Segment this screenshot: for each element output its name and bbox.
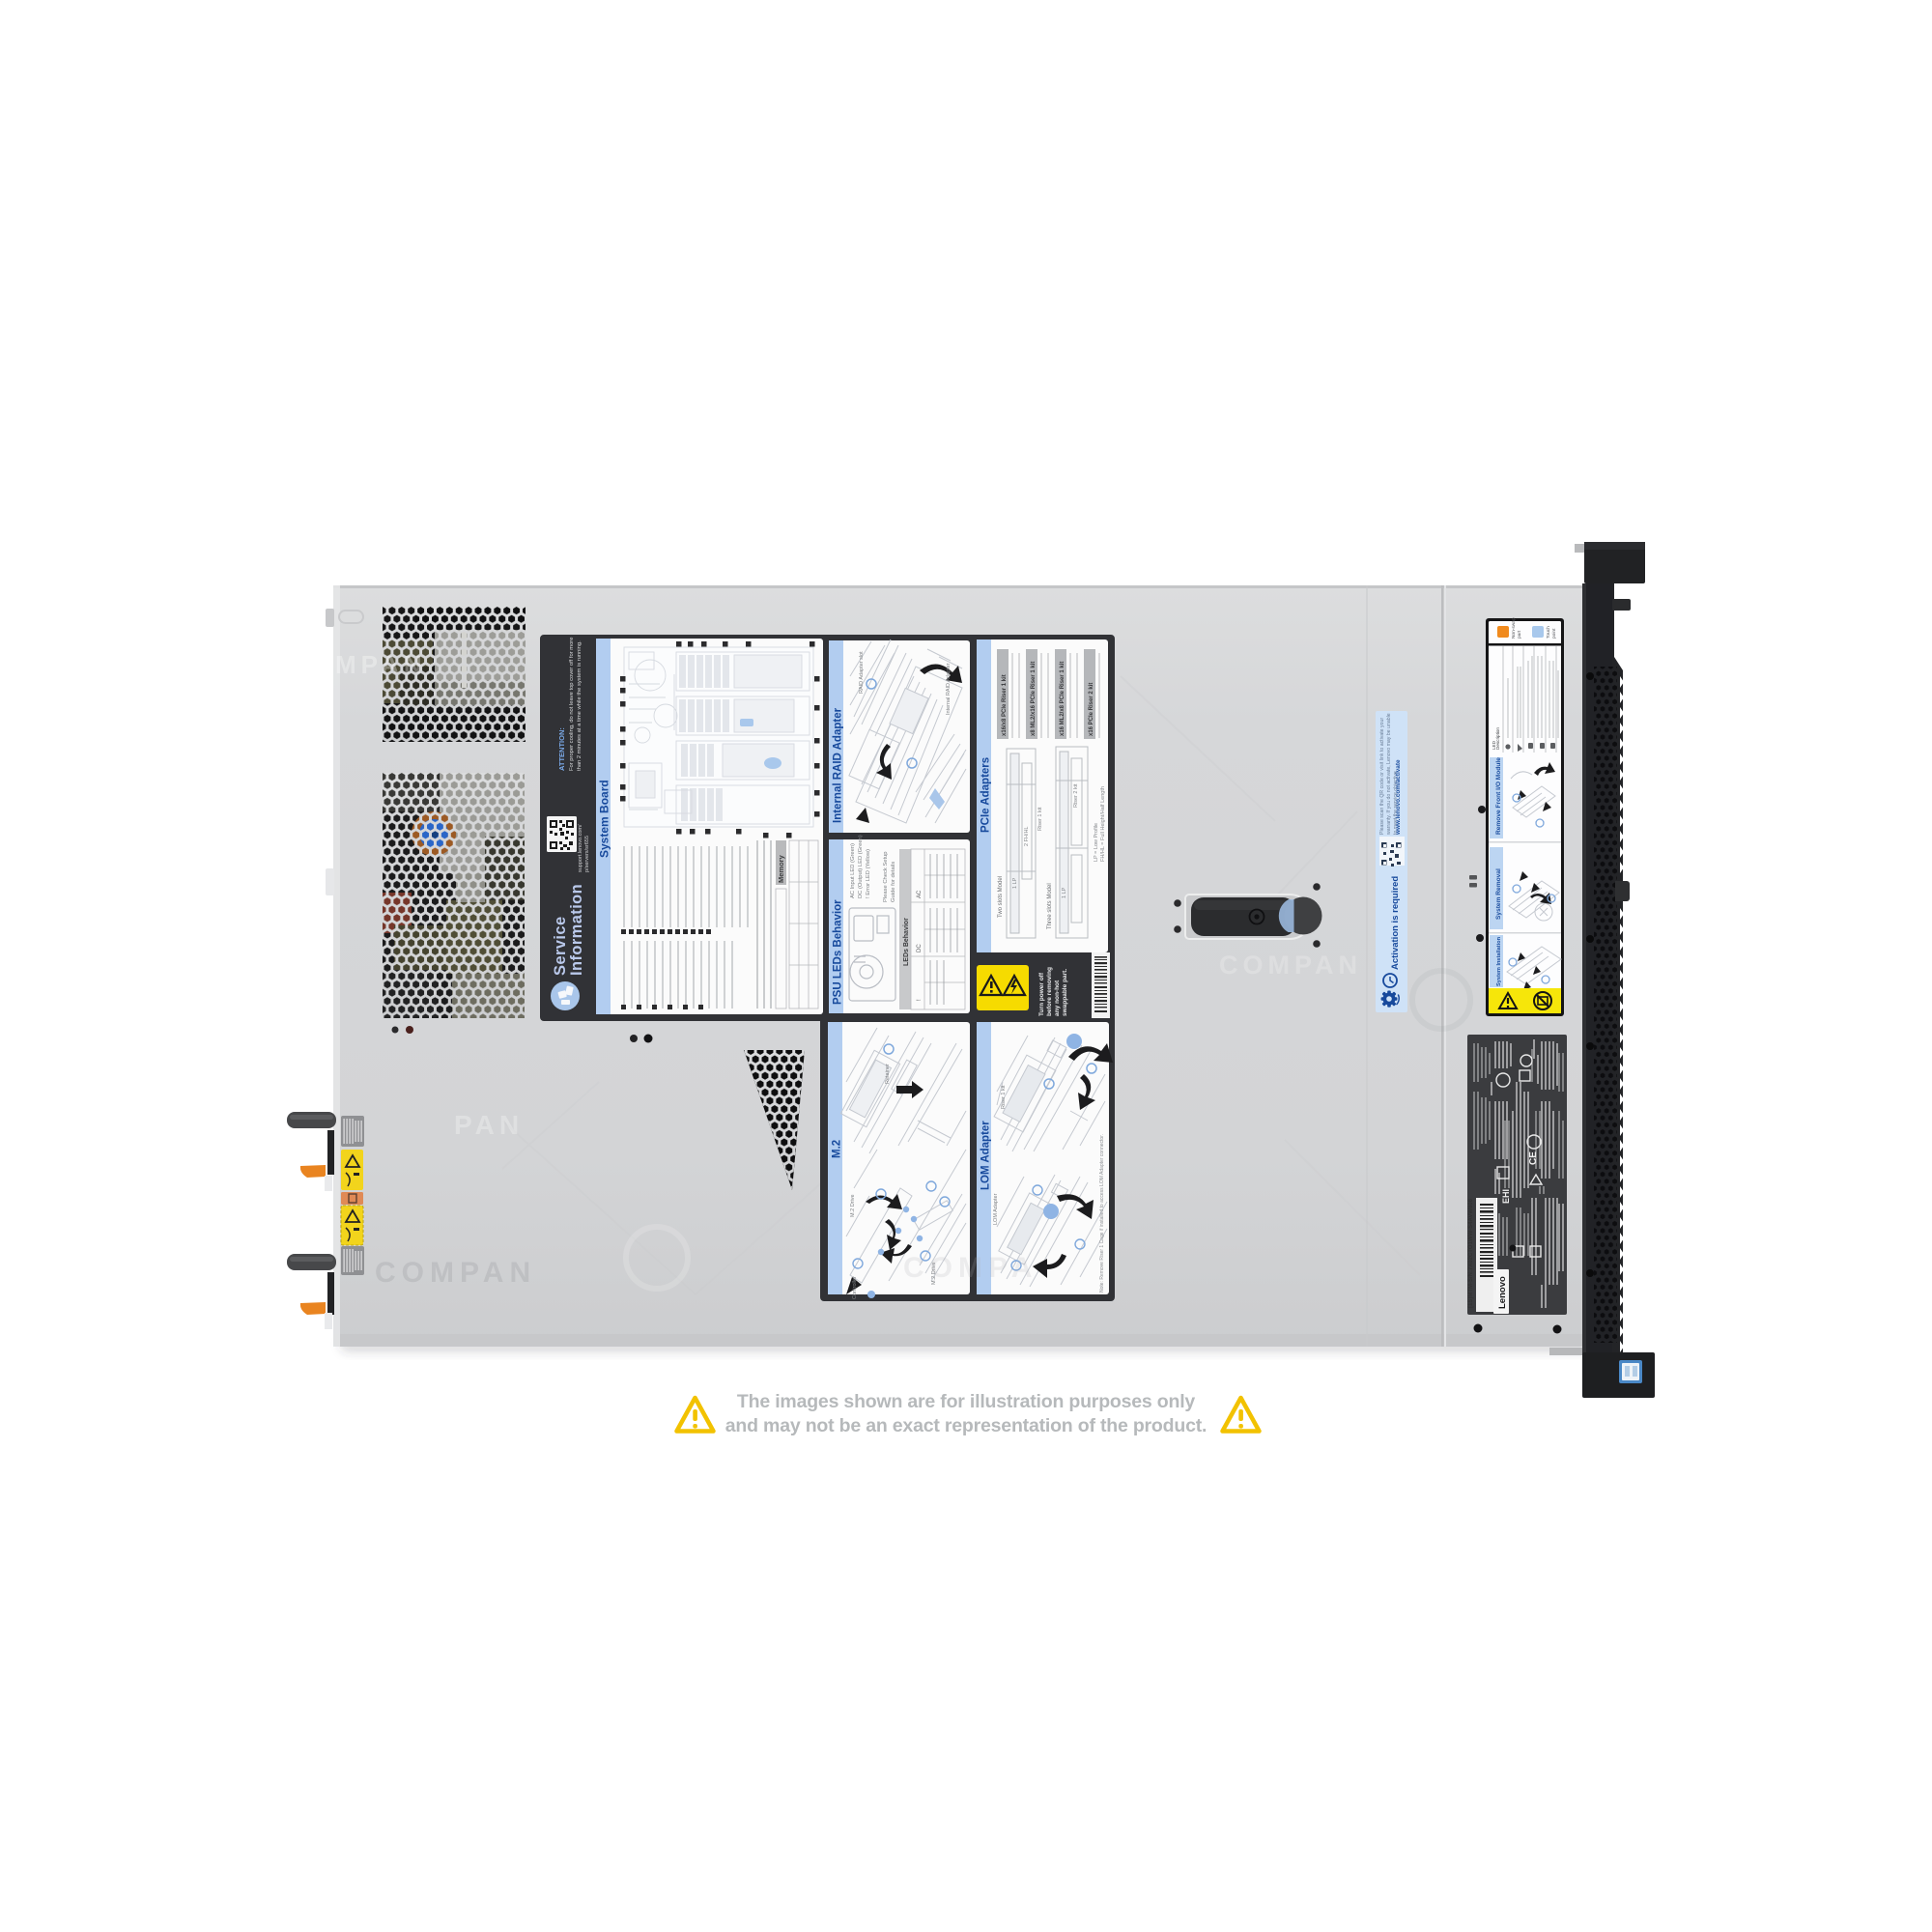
svg-text:Activation is required: Activation is required (1390, 876, 1401, 970)
svg-text:www.lenovo.com/activate: www.lenovo.com/activate (1395, 759, 1402, 836)
svg-text:part: part (1517, 630, 1522, 639)
svg-text:System Board: System Board (598, 780, 611, 858)
svg-text:AC: AC (917, 890, 923, 898)
svg-text:[1S]MTM-S/N:7X02CTO1WW-S4AVW80: [1S]MTM-S/N:7X02CTO1WW-S4AVW806 (1468, 1198, 1474, 1308)
svg-text:1 LP: 1 LP (1062, 887, 1067, 898)
svg-text:! Error LED (Yellow): ! Error LED (Yellow) (866, 849, 871, 898)
svg-text:Riser 1 kit: Riser 1 kit (1001, 1085, 1007, 1109)
svg-text:before removing: before removing (1046, 967, 1053, 1016)
svg-text:Riser 1 kit: Riser 1 kit (1037, 807, 1043, 831)
svg-text:M.2 Drive: M.2 Drive (850, 1194, 856, 1217)
svg-text:Controller: Controller (852, 1276, 858, 1299)
svg-text:DC (Output) LED (Green): DC (Output) LED (Green) (858, 835, 864, 898)
svg-text:CE: CE (1528, 1151, 1539, 1165)
svg-text:COMPAN: COMPAN (375, 1257, 536, 1289)
svg-text:2 FH/HL: 2 FH/HL (1024, 827, 1030, 846)
svg-text:AC Input LED (Green): AC Input LED (Green) (850, 843, 856, 898)
svg-text:warranty. If you do not activa: warranty. If you do not activate, Lenovo… (1386, 713, 1392, 835)
svg-text:x8 ML2/x16 PCIe Riser 1 kit: x8 ML2/x16 PCIe Riser 1 kit (1031, 662, 1037, 736)
svg-text:The images shown are for illus: The images shown are for illustration pu… (737, 1391, 1195, 1412)
svg-text:Information: Information (568, 884, 585, 976)
svg-text:p/servers/sr655: p/servers/sr655 (584, 836, 590, 872)
svg-text:Internal RAID Adapter: Internal RAID Adapter (946, 663, 952, 715)
svg-text:For proper cooling, do not lea: For proper cooling, do not leave top cov… (569, 638, 575, 771)
svg-text:and may not be an exact repres: and may not be an exact representation o… (725, 1415, 1207, 1436)
svg-text:Please Check Setup: Please Check Setup (883, 851, 889, 902)
svg-text:LOM Adapter: LOM Adapter (980, 1121, 992, 1190)
svg-text:M.2: M.2 (832, 1140, 843, 1158)
svg-text:than 2 minutes at a time while: than 2 minutes at a time while the syste… (577, 640, 582, 771)
svg-text:System Removal: System Removal (1495, 868, 1502, 920)
svg-text:Riser 2 kit: Riser 2 kit (1073, 783, 1079, 808)
svg-text:x16/x8 PCIe Riser 1 kit: x16/x8 PCIe Riser 1 kit (1002, 674, 1008, 736)
svg-text:LEDs Behavior: LEDs Behavior (903, 918, 910, 966)
svg-text:Three slots Model: Three slots Model (1047, 883, 1053, 929)
svg-text:any non-hot: any non-hot (1054, 980, 1061, 1016)
svg-text:ATTENTION:: ATTENTION: (557, 727, 566, 771)
svg-text:x16 PCIe Riser 2 kit: x16 PCIe Riser 2 kit (1089, 683, 1094, 736)
svg-text:1 LP: 1 LP (1012, 877, 1018, 889)
svg-text:LP = Low Profile: LP = Low Profile (1094, 823, 1099, 862)
svg-text:COMPAN: COMPAN (288, 650, 427, 679)
svg-text:PAN: PAN (454, 1110, 524, 1140)
svg-text:Remove Front I/O Module: Remove Front I/O Module (1495, 757, 1502, 835)
svg-text:Memory: Memory (777, 854, 785, 883)
svg-text:Description: Description (1495, 727, 1500, 750)
svg-text:Non-swap: Non-swap (1511, 617, 1517, 639)
svg-text:System Installation: System Installation (1496, 936, 1502, 986)
svg-text:Service: Service (552, 916, 569, 976)
svg-text:point: point (1551, 628, 1557, 639)
svg-text:Please scan the QR code or vis: Please scan the QR code or visit link to… (1379, 718, 1385, 835)
svg-text:support.lenovo.com/: support.lenovo.com/ (578, 824, 583, 872)
svg-text:Lenovo: Lenovo (1497, 1276, 1508, 1309)
svg-text:FH/HL = Full Height/Half Lengt: FH/HL = Full Height/Half Length (1100, 786, 1106, 862)
svg-text:Touch: Touch (1546, 626, 1551, 639)
svg-text:COMPA: COMPA (903, 1252, 1037, 1284)
svg-text:Retainer: Retainer (885, 1064, 891, 1084)
svg-text:LOM Adapter: LOM Adapter (993, 1193, 999, 1225)
svg-text:RAID Adapter slot: RAID Adapter slot (859, 651, 865, 694)
svg-text:PSU LEDs Behavior: PSU LEDs Behavior (833, 899, 844, 1005)
svg-text:DC: DC (917, 944, 923, 952)
svg-text:EHI: EHI (1501, 1189, 1511, 1204)
svg-text:x16 ML2/x8 PCIe Riser 1 kit: x16 ML2/x8 PCIe Riser 1 kit (1060, 662, 1065, 736)
svg-text:Internal RAID Adapter: Internal RAID Adapter (833, 707, 844, 823)
svg-text:Note: Remove Riser 1 Cage if i: Note: Remove Riser 1 Cage if installed t… (1099, 1134, 1105, 1293)
svg-text:Two slots Model: Two slots Model (998, 876, 1004, 918)
svg-text:PCIe Adapters: PCIe Adapters (980, 757, 992, 833)
svg-text:Guide for details: Guide for details (891, 862, 896, 902)
svg-text:swappable part.: swappable part. (1062, 969, 1068, 1016)
svg-text:COMPAN: COMPAN (1219, 951, 1362, 980)
svg-text:Turn power off: Turn power off (1038, 972, 1045, 1016)
